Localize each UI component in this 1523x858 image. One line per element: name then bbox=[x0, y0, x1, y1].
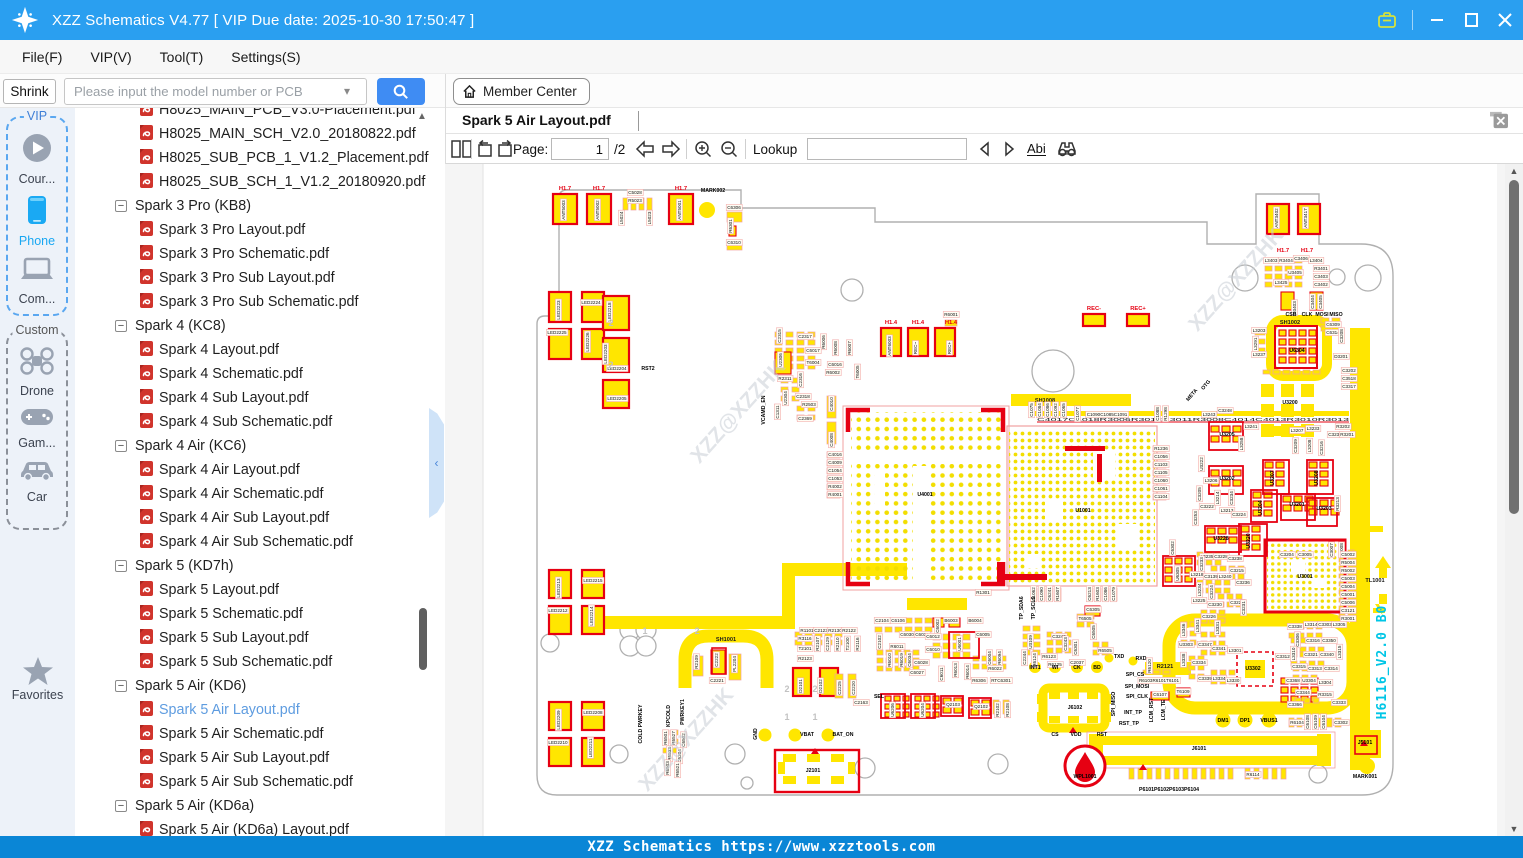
tree-item-label: Spark 4 Sub Schematic.pdf bbox=[159, 414, 332, 430]
next-page-icon[interactable] bbox=[660, 134, 682, 164]
pcb-label: U4001 bbox=[917, 492, 932, 498]
tree-item-label: H8025_SUB_SCH_1_V1.2_20180920.pdf bbox=[159, 174, 425, 190]
prev-page-icon[interactable] bbox=[634, 134, 656, 164]
pcb-label: L3301 bbox=[1229, 648, 1242, 653]
tree-group-spark-4-kc8-[interactable]: −Spark 4 (KC8) bbox=[75, 314, 432, 338]
pcb-label: U3204 bbox=[1258, 500, 1264, 515]
page-total: /2 bbox=[614, 134, 625, 164]
pcb-label: L3315 bbox=[1337, 645, 1342, 658]
pcb-label: C3518 bbox=[1342, 376, 1356, 381]
pcb-label: C3317 bbox=[1342, 384, 1356, 389]
pcb-label: C5003 bbox=[1341, 576, 1355, 581]
pcb-label: T2101 bbox=[798, 646, 811, 651]
pcb-label: C6305 bbox=[1086, 607, 1100, 612]
pcb-label: T2100 bbox=[845, 637, 850, 650]
pcb-label: D2102 bbox=[818, 679, 823, 693]
pcb-label: U6206 bbox=[890, 703, 895, 717]
zoom-out-icon[interactable] bbox=[719, 134, 739, 164]
sidebar-item-drone[interactable]: Drone bbox=[19, 345, 55, 398]
tab-bar: Spark 5 Air Layout.pdf bbox=[446, 108, 1523, 134]
pcb-label: KPCOLD bbox=[666, 705, 672, 727]
pcb-label: R5004 bbox=[1341, 560, 1355, 565]
pcb-label: R6019 bbox=[899, 653, 904, 667]
pcb-label: C3231 bbox=[1241, 601, 1246, 615]
sidebar-item-label: Car bbox=[27, 490, 47, 504]
collapse-toggle-icon[interactable]: − bbox=[115, 440, 127, 452]
tree-item-label: Spark 3 Pro Layout.pdf bbox=[159, 222, 305, 238]
tree-file-h8025_sub_sch_1_v1-2_20180920-pdf[interactable]: H8025_SUB_SCH_1_V1.2_20180920.pdf bbox=[75, 170, 432, 194]
tree-file-spark-5-sub-schematic-pdf[interactable]: Spark 5 Sub Schematic.pdf bbox=[75, 650, 432, 674]
pcb-label: BAT_ON bbox=[833, 732, 854, 738]
pcb-label: C3236 bbox=[1236, 580, 1250, 585]
tree-file-spark-5-air-kd6a-layout-pdf[interactable]: Spark 5 Air (KD6a) Layout.pdf bbox=[75, 818, 432, 836]
pcb-label: R2110 bbox=[835, 637, 840, 651]
pcb-label: U3228 bbox=[1213, 536, 1228, 542]
pcb-label: C3334 bbox=[1192, 660, 1206, 665]
pcb-label: C5002 bbox=[1341, 552, 1355, 557]
member-center-button[interactable]: Member Center bbox=[453, 78, 590, 105]
pcb-label: L3243 bbox=[1203, 412, 1216, 417]
pcb-label: R6094 bbox=[997, 651, 1002, 665]
pcb-label: H1.4 bbox=[885, 320, 898, 326]
favorites-star-icon bbox=[22, 656, 54, 686]
tree-file-spark-3-pro-sub-layout-pdf[interactable]: Spark 3 Pro Sub Layout.pdf bbox=[75, 266, 432, 290]
status-bar: XZZ Schematics https://www.xzztools.com bbox=[0, 836, 1523, 858]
pcb-label: R5002 bbox=[1341, 568, 1355, 573]
pcb-label: C3347 bbox=[1198, 642, 1212, 647]
pcb-label: LED2205 bbox=[607, 396, 627, 401]
custom-group-label: Custom bbox=[12, 323, 61, 337]
pcb-label: R6103R6101T6101 bbox=[1139, 678, 1180, 683]
tab-separator bbox=[638, 111, 639, 131]
pcb-label: C3314 bbox=[1324, 666, 1338, 671]
pcb-label: GND bbox=[753, 728, 759, 740]
pcb-label: R1236 bbox=[1154, 446, 1168, 451]
two-page-view-icon[interactable] bbox=[451, 134, 473, 164]
collapse-toggle-icon[interactable]: − bbox=[115, 560, 127, 572]
pcb-label: ANT5001 bbox=[677, 200, 682, 220]
pcb-label: C3340 bbox=[1320, 652, 1334, 657]
pcb-label: INT_TP bbox=[1124, 710, 1142, 716]
pcb-label: INT1 bbox=[1029, 665, 1040, 671]
abi-text-search-icon[interactable]: Abi bbox=[1027, 134, 1046, 164]
pcb-label: R2102 bbox=[995, 703, 1000, 717]
pcb-label: U3203 bbox=[1316, 506, 1331, 512]
zoom-in-icon[interactable] bbox=[693, 134, 713, 164]
tree-file-spark-5-schematic-pdf[interactable]: Spark 5 Schematic.pdf bbox=[75, 602, 432, 626]
pdf-icon bbox=[140, 821, 153, 837]
scroll-down-icon[interactable]: ▼ bbox=[1505, 824, 1523, 834]
pcb-label: B6003 bbox=[944, 618, 958, 623]
pcb-label: C3209 bbox=[1293, 439, 1298, 453]
collapse-toggle-icon[interactable]: − bbox=[115, 800, 127, 812]
pcb-label: C2220 bbox=[851, 681, 856, 695]
tree-item-label: Spark 5 Sub Layout.pdf bbox=[159, 630, 308, 646]
pcb-label: TP_SDA6 bbox=[1019, 596, 1025, 619]
pcb-label: L3346 bbox=[1181, 623, 1186, 636]
pcb-label: C3224 bbox=[1232, 512, 1246, 517]
pcb-label: R2130 bbox=[828, 628, 842, 633]
shrink-button[interactable]: Shrink bbox=[3, 79, 56, 104]
tree-file-h8025_main_sch_v2-0_20180822-pdf[interactable]: H8025_MAIN_SCH_V2.0_20180822.pdf bbox=[75, 122, 432, 146]
pdf-icon bbox=[140, 605, 153, 624]
pcb-label: C1079 bbox=[1111, 587, 1116, 601]
page-label: Page: bbox=[513, 134, 548, 164]
overview-binoculars-icon[interactable] bbox=[1055, 134, 1079, 164]
tree-file-spark-4-air-layout-pdf[interactable]: Spark 4 Air Layout.pdf bbox=[75, 458, 432, 482]
pcb-label: L3233 bbox=[1307, 426, 1320, 431]
pcb-label: R2121 bbox=[1157, 664, 1173, 670]
pcb-label: 2 bbox=[608, 318, 613, 328]
pcb-label: C4016 bbox=[828, 452, 842, 457]
file-tree: H8025_MAIN_PCB_V3.0-Placement.pdfH8025_M… bbox=[75, 108, 432, 836]
pcb-label: 1 bbox=[784, 712, 789, 722]
pcb-label: C3007 bbox=[1329, 543, 1334, 557]
pcb-label: C2102 bbox=[877, 635, 882, 649]
pcb-label: R6007 bbox=[847, 341, 852, 355]
play-icon bbox=[20, 131, 54, 170]
menu-item-vipv[interactable]: VIP(V) bbox=[76, 40, 145, 74]
collapse-panel-handle[interactable]: ‹ bbox=[429, 408, 444, 518]
pcb-label: C1090 bbox=[1039, 587, 1044, 601]
status-text: XZZ Schematics https://www.xzztools.com bbox=[587, 839, 935, 855]
pcb-label: C3205 bbox=[1197, 487, 1202, 501]
lookup-input[interactable] bbox=[807, 138, 967, 160]
member-center-label: Member Center bbox=[483, 84, 577, 99]
tree-file-spark-5-air-schematic-pdf[interactable]: Spark 5 Air Schematic.pdf bbox=[75, 722, 432, 746]
search-icon bbox=[392, 83, 410, 101]
pcb-label: C3302 bbox=[1334, 720, 1348, 725]
pcb-label: C1053 bbox=[828, 476, 842, 481]
pcb-label: L3425 bbox=[1275, 280, 1288, 285]
tree-item-label: Spark 5 Schematic.pdf bbox=[159, 606, 303, 622]
sidebar-item-label: Gam... bbox=[18, 436, 56, 450]
pcb-label: SEL bbox=[874, 694, 885, 700]
pcb-label: L3404 bbox=[1310, 258, 1323, 263]
pcb-label: CSB bbox=[1286, 312, 1297, 318]
pcb-label: H1.7 bbox=[675, 186, 687, 192]
pcb-label: C5004 bbox=[1341, 584, 1355, 589]
pcb-label: U3220 bbox=[1246, 533, 1252, 548]
pcb-label: R1298 bbox=[1163, 407, 1168, 421]
pcb-label: D2101 bbox=[798, 679, 803, 693]
pdf-icon bbox=[140, 221, 153, 240]
tree-file-spark-4-air-sub-schematic-pdf[interactable]: Spark 4 Air Sub Schematic.pdf bbox=[75, 530, 432, 554]
pcb-label: REC+ bbox=[1130, 306, 1146, 312]
pcb-label: DP1 bbox=[1240, 718, 1250, 724]
pcb-label: U3207 bbox=[1270, 470, 1276, 485]
pcb-label: TL1001 bbox=[1365, 578, 1384, 584]
pcb-label: U3205 bbox=[1219, 432, 1234, 438]
tree-item-label: Spark 3 Pro Sub Layout.pdf bbox=[159, 270, 335, 286]
pcb-label: LED2213 bbox=[556, 578, 561, 598]
pcb-label: J6102 bbox=[1068, 705, 1083, 711]
tree-file-spark-4-sub-layout-pdf[interactable]: Spark 4 Sub Layout.pdf bbox=[75, 386, 432, 410]
pcb-label: C3321 bbox=[1304, 652, 1318, 657]
prev-match-icon[interactable] bbox=[977, 134, 993, 164]
pcb-label: C2123 bbox=[814, 628, 828, 633]
pcb-label: C2244 bbox=[1022, 651, 1027, 665]
pcb-label: C3339 bbox=[1198, 676, 1212, 681]
collapse-toggle-icon[interactable]: − bbox=[115, 200, 127, 212]
pcb-label: U3222 bbox=[1199, 457, 1204, 471]
pdf-canvas[interactable]: H1.7H1.7H1.7MARK002ANT5003ANT5002ANT5001… bbox=[445, 164, 1505, 836]
pcb-label: SPI_MISO bbox=[1111, 692, 1117, 717]
tree-file-spark-5-air-layout-pdf[interactable]: Spark 5 Air Layout.pdf bbox=[75, 698, 432, 722]
pcb-label: R2107 bbox=[815, 637, 820, 651]
tree-file-spark-4-sub-schematic-pdf[interactable]: Spark 4 Sub Schematic.pdf bbox=[75, 410, 432, 434]
pcb-label: LCM_RST bbox=[1149, 697, 1155, 722]
pcb-label: R6104 bbox=[1290, 720, 1304, 725]
pcb-label: L3225 bbox=[1193, 598, 1206, 603]
pcb-label: LCM_TE bbox=[1161, 699, 1167, 720]
pcb-label: J2101 bbox=[806, 768, 821, 774]
pcb-label: R6014 bbox=[965, 665, 970, 679]
pcb-label: U3405 bbox=[1288, 270, 1302, 275]
pcb-label: ANT6003 bbox=[887, 336, 892, 356]
pcb-label: L3240 bbox=[1219, 574, 1232, 579]
pcb-label: C6505 bbox=[1091, 625, 1096, 639]
pcb-label: VDD bbox=[1071, 732, 1082, 738]
pcb-label: U3303 bbox=[1179, 642, 1193, 647]
pdf-icon bbox=[140, 341, 153, 360]
pcb-label: R1607 bbox=[1055, 587, 1060, 601]
tree-item-label: Spark 4 Air (KC6) bbox=[135, 438, 246, 454]
pcb-label: J5101 bbox=[1358, 740, 1373, 746]
pdf-icon bbox=[140, 365, 153, 384]
pcb-label: C4009 bbox=[828, 460, 842, 465]
tree-file-spark-4-layout-pdf[interactable]: Spark 4 Layout.pdf bbox=[75, 338, 432, 362]
pcb-label: RST2 bbox=[641, 366, 654, 372]
pcb-label: U6304 bbox=[1289, 348, 1304, 354]
rotate-right-icon[interactable] bbox=[494, 134, 514, 164]
pcb-label: 1 bbox=[812, 712, 817, 722]
pcb-label: R3315 bbox=[1318, 692, 1332, 697]
pcb-label: 2 bbox=[694, 626, 699, 636]
tree-item-label: Spark 3 Pro (KB8) bbox=[135, 198, 251, 214]
pcb-label: C1075 bbox=[1029, 403, 1034, 417]
pcb-label: LED2223 bbox=[556, 300, 561, 320]
pcb-label: COLD PWRKEY bbox=[638, 704, 644, 743]
sidebar-item-label: Cour... bbox=[19, 172, 56, 186]
pcb-label: C3202 bbox=[1342, 368, 1356, 373]
next-match-icon[interactable] bbox=[1001, 134, 1017, 164]
pdf-icon bbox=[140, 749, 153, 768]
menu-item-toolt[interactable]: Tool(T) bbox=[146, 40, 218, 74]
pcb-label: C3226 bbox=[1202, 614, 1216, 619]
tree-item-label: Spark 3 Pro Schematic.pdf bbox=[159, 246, 329, 262]
pcb-label: R3404 bbox=[1279, 258, 1293, 263]
pcb-label: L3314 bbox=[1305, 622, 1318, 627]
sidebar-item-car[interactable]: Car bbox=[19, 457, 55, 504]
menu-item-filef[interactable]: File(F) bbox=[8, 40, 76, 74]
pcb-label: C3313 bbox=[1308, 666, 1322, 671]
maximize-icon[interactable] bbox=[1461, 10, 1481, 30]
pcb-label: LED2214 bbox=[589, 606, 594, 626]
vip-group-label: VIP bbox=[24, 109, 50, 123]
pcb-label: C4017C4018R3006R3012R3011R3008C4014C4013… bbox=[1037, 417, 1350, 422]
pcb-label: H1.4 bbox=[945, 320, 958, 326]
pcb-label: C2318 bbox=[796, 394, 810, 399]
tree-file-spark-5-air-sub-schematic-pdf[interactable]: Spark 5 Air Sub Schematic.pdf bbox=[75, 770, 432, 794]
tree-group-spark-4-air-kc6-[interactable]: −Spark 4 Air (KC6) bbox=[75, 434, 432, 458]
pcb-label: DM1 bbox=[1218, 718, 1229, 724]
scroll-up-icon[interactable]: ▲ bbox=[1505, 166, 1523, 176]
viewer-scrollbar-thumb[interactable] bbox=[1509, 180, 1519, 514]
sidebar-item-favorites[interactable]: Favorites bbox=[0, 656, 75, 702]
pcb-label: VBAT bbox=[800, 732, 815, 738]
pcb-label: MISO bbox=[1329, 312, 1342, 318]
pcb-label: C2222 bbox=[714, 653, 719, 667]
close-icon[interactable] bbox=[1495, 10, 1515, 30]
pcb-label: WI bbox=[1052, 665, 1059, 671]
search-button[interactable] bbox=[377, 78, 425, 105]
tree-file-spark-4-schematic-pdf[interactable]: Spark 4 Schematic.pdf bbox=[75, 362, 432, 386]
pcb-label: C3312 bbox=[1276, 654, 1290, 659]
pcb-label: C6034 bbox=[907, 653, 912, 667]
tree-item-label: Spark 5 Air Layout.pdf bbox=[159, 702, 300, 718]
minimize-icon[interactable] bbox=[1427, 10, 1447, 30]
tree-file-spark-3-pro-schematic-pdf[interactable]: Spark 3 Pro Schematic.pdf bbox=[75, 242, 432, 266]
app-logo-icon bbox=[10, 5, 40, 35]
pcb-label: D3201 bbox=[1334, 354, 1348, 359]
toolbar-separator bbox=[745, 139, 746, 159]
tree-file-spark-3-pro-sub-schematic-pdf[interactable]: Spark 3 Pro Sub Schematic.pdf bbox=[75, 290, 432, 314]
close-tabs-icon[interactable] bbox=[1489, 111, 1509, 129]
pdf-icon bbox=[140, 725, 153, 744]
viewer-scrollbar[interactable]: ▲ ▼ bbox=[1505, 164, 1523, 836]
collapse-toggle-icon[interactable]: − bbox=[115, 680, 127, 692]
pdf-icon bbox=[140, 245, 153, 264]
tree-group-spark-5-air-kd6-[interactable]: −Spark 5 Air (KD6) bbox=[75, 674, 432, 698]
pcb-label: R3001 bbox=[1341, 616, 1355, 621]
pcb-label: C3234 bbox=[1229, 491, 1234, 505]
vip-group: VIP Cour...PhoneCom... bbox=[6, 116, 68, 316]
pcb-label: L5024 bbox=[619, 211, 624, 224]
pcb-label: C3121 bbox=[1341, 608, 1355, 613]
pcb-label: C3204 bbox=[1280, 552, 1294, 557]
pcb-label: C2129 bbox=[825, 637, 830, 651]
pcb-label: C6002 bbox=[935, 619, 940, 633]
pcb-label: L3258 bbox=[1239, 437, 1244, 450]
pcb-label: C1088 bbox=[1155, 407, 1160, 421]
pcb-label: LED2226 bbox=[585, 332, 590, 352]
pcb-label: P6101P6102P6103P6104 bbox=[1139, 787, 1199, 793]
pcb-label: LED2208 bbox=[583, 710, 603, 715]
tree-group-spark-5-kd7h-[interactable]: −Spark 5 (KD7h) bbox=[75, 554, 432, 578]
tree-item-label: H8025_MAIN_PCB_V3.0-Placement.pdf bbox=[159, 108, 416, 118]
pcb-label: C2316 bbox=[798, 373, 803, 387]
pcb-label: R2116 bbox=[855, 637, 860, 651]
tree-file-spark-5-layout-pdf[interactable]: Spark 5 Layout.pdf bbox=[75, 578, 432, 602]
pcb-label: C3253 bbox=[1193, 511, 1198, 525]
sidebar-item-phone[interactable]: Phone bbox=[19, 193, 55, 248]
pcb-label: C1086 bbox=[1045, 403, 1050, 417]
pcb-label: C6310 bbox=[727, 240, 741, 245]
pcb-label: L3310 bbox=[1291, 647, 1296, 660]
pcb-label: C6027 bbox=[910, 670, 924, 675]
pcb-label: R3401 bbox=[1314, 266, 1328, 271]
pcb-label: R6011 bbox=[890, 644, 904, 649]
pcb-label: U3109 bbox=[1028, 635, 1033, 649]
pcb-label: L3208 bbox=[1307, 439, 1312, 452]
tree-file-spark-4-air-sub-layout-pdf[interactable]: Spark 4 Air Sub Layout.pdf bbox=[75, 506, 432, 530]
tree-item-label: Spark 4 Air Sub Layout.pdf bbox=[159, 510, 329, 526]
pcb-label: U3200 bbox=[1282, 400, 1297, 406]
sidebar-item-com[interactable]: Com... bbox=[19, 255, 56, 306]
pcb-label: C3341 bbox=[1212, 646, 1226, 651]
menu-item-settingss[interactable]: Settings(S) bbox=[217, 40, 314, 74]
tab-document-title[interactable]: Spark 5 Air Layout.pdf bbox=[462, 112, 611, 128]
pcb-label: R6002 bbox=[826, 370, 840, 375]
pcb-label: BD bbox=[1093, 665, 1101, 671]
pcb-label: L3234 bbox=[1197, 583, 1202, 596]
tree-file-spark-5-air-sub-layout-pdf[interactable]: Spark 5 Air Sub Layout.pdf bbox=[75, 746, 432, 770]
pdf-icon bbox=[140, 293, 153, 312]
tree-file-spark-3-pro-layout-pdf[interactable]: Spark 3 Pro Layout.pdf bbox=[75, 218, 432, 242]
sidebar-item-gam[interactable]: Gam... bbox=[18, 405, 56, 450]
pcb-label: ANT3417 bbox=[1303, 208, 1308, 228]
pcb-label: LED2210 bbox=[548, 740, 568, 745]
pcb-label: C6302 bbox=[1170, 541, 1175, 555]
pcb-label: C1104 bbox=[1154, 494, 1168, 499]
toolbar-separator bbox=[471, 139, 472, 159]
rotate-left-icon[interactable] bbox=[476, 134, 496, 164]
tree-group-spark-5-air-kd6a-[interactable]: −Spark 5 Air (KD6a) bbox=[75, 794, 432, 818]
collapse-toggle-icon[interactable]: − bbox=[115, 320, 127, 332]
tree-file-h8025_main_pcb_v3-0-placement-pdf[interactable]: H8025_MAIN_PCB_V3.0-Placement.pdf bbox=[75, 108, 432, 122]
pcb-label: C6010 bbox=[926, 647, 940, 652]
tree-file-h8025_sub_pcb_1_v1-2_placement-pdf[interactable]: H8025_SUB_PCB_1_V1.2_Placement.pdf bbox=[75, 146, 432, 170]
pcb-label: C6109 bbox=[1313, 715, 1318, 729]
computer-icon bbox=[19, 255, 55, 290]
pcb-label: C3303 bbox=[1318, 622, 1332, 627]
pcb-label: C6213 bbox=[1087, 587, 1092, 601]
pcb-label: C1056 bbox=[1154, 454, 1168, 459]
pcb-label: C2163 bbox=[854, 700, 868, 705]
pcb-label: C1105 bbox=[1154, 470, 1168, 475]
page-number-input[interactable] bbox=[551, 138, 609, 160]
pcb-label: C3366 bbox=[1288, 702, 1302, 707]
pcb-label: C1092 bbox=[1053, 403, 1058, 417]
tree-item-label: Spark 4 Air Schematic.pdf bbox=[159, 486, 324, 502]
tree-scroll-up-icon[interactable]: ▲ bbox=[417, 111, 427, 122]
pdf-icon bbox=[140, 485, 153, 504]
pcb-label: L3305 bbox=[1333, 622, 1346, 627]
pcb-label: C6028 bbox=[914, 660, 928, 665]
pcb-label: H6116_V2.0 B0 bbox=[1375, 605, 1390, 720]
pcb-label: U3302 bbox=[1245, 666, 1260, 672]
gamepad-icon bbox=[19, 405, 55, 434]
pcb-label: ANT3402 bbox=[1274, 208, 1279, 228]
phone-icon bbox=[20, 193, 54, 232]
pcb-label: C2104 bbox=[875, 618, 889, 623]
sidebar-item-cour[interactable]: Cour... bbox=[19, 131, 56, 186]
tree-file-spark-4-air-schematic-pdf[interactable]: Spark 4 Air Schematic.pdf bbox=[75, 482, 432, 506]
pcb-label: T6005 bbox=[855, 365, 860, 378]
pcb-label: R6123 bbox=[1042, 654, 1056, 659]
pcb-label: U3202 bbox=[1219, 476, 1234, 482]
tree-file-spark-5-sub-layout-pdf[interactable]: Spark 5 Sub Layout.pdf bbox=[75, 626, 432, 650]
search-input[interactable] bbox=[64, 78, 367, 105]
pcb-label: L3341 bbox=[1195, 619, 1200, 632]
tree-group-spark-3-pro-kb8-[interactable]: −Spark 3 Pro (KB8) bbox=[75, 194, 432, 218]
pcb-label: SH1002 bbox=[1280, 320, 1300, 326]
tree-scrollbar-thumb[interactable] bbox=[419, 608, 427, 670]
briefcase-icon[interactable] bbox=[1376, 9, 1398, 31]
pcb-label: C2369 bbox=[798, 416, 812, 421]
pcb-label: R6306 bbox=[972, 678, 986, 683]
